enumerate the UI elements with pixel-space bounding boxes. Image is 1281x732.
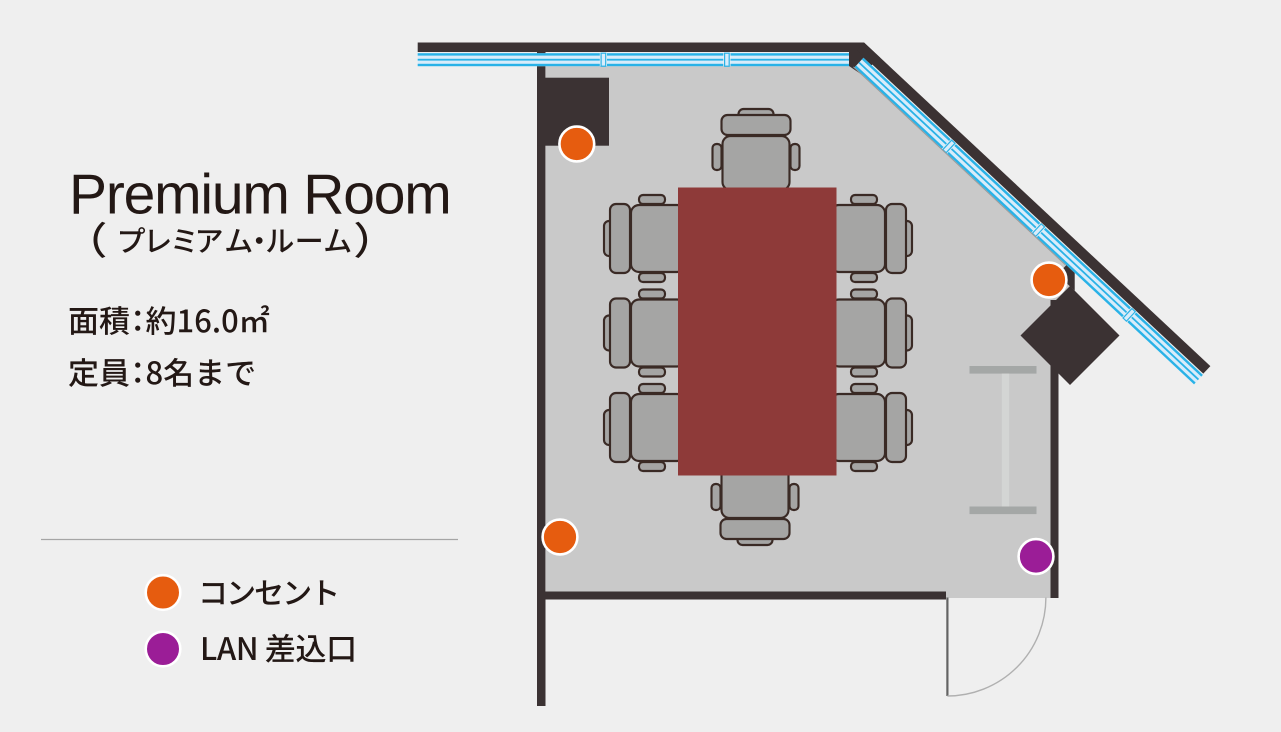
svg-text:Premium Room: Premium Room [69, 163, 451, 227]
